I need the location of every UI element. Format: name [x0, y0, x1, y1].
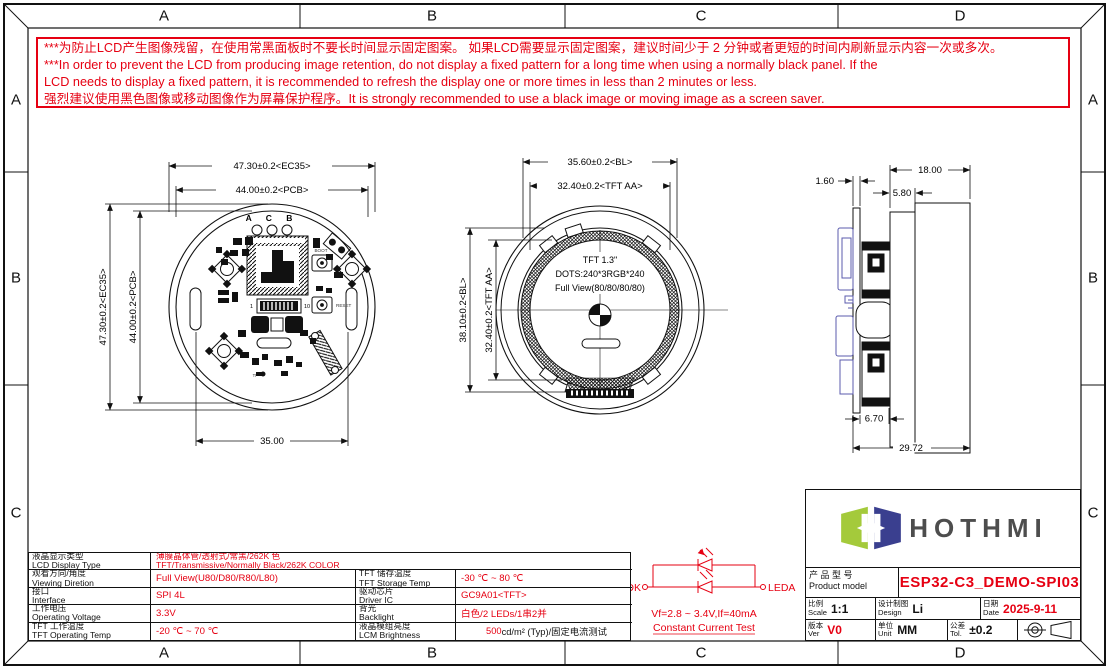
- lcd-slot: [582, 339, 620, 348]
- retention-warning-box: ***为防止LCD产生图像残留，在使用常黑面板时不要长时间显示固定图案。 如果L…: [36, 37, 1070, 108]
- date-cell: 日期Date 2025-9-11: [981, 598, 1080, 619]
- spec-value-viewing: Full View(U80/D80/R80/L80): [151, 570, 356, 587]
- centroid-symbol: [589, 304, 611, 326]
- spec-label-backlight: 背光Backlight: [356, 605, 456, 622]
- grid-col-b-top: B: [427, 8, 437, 25]
- spec-table: 液晶显示类型LCD Display Type 薄膜晶体管/透射式/常黑/262K…: [28, 552, 631, 641]
- version-value: V0: [827, 623, 842, 637]
- logo-wordmark: HOTHMI: [909, 513, 1048, 544]
- spec-label-viewing: 观看方向/角度Viewing Diretion: [29, 570, 151, 587]
- pin-header: [257, 299, 301, 313]
- front-dimensions: [105, 162, 375, 446]
- unit-cell: 单位Unit MM: [876, 620, 948, 640]
- spec-value-display-type: 薄膜晶体管/透射式/常黑/262K 色TFT/Transmissive/Norm…: [151, 553, 632, 570]
- dim-side-depth: 18.00: [918, 165, 942, 176]
- boot-label: BOOT: [314, 248, 327, 253]
- dim-lcd-left-outer: 38.10±0.2<BL>: [458, 277, 469, 342]
- front-view: A C B BOOT RESET: [98, 160, 375, 447]
- grid-col-c-bottom: C: [696, 645, 707, 662]
- spec-label-storage-temp: TFT 储存温度TFT Storage Temp: [356, 570, 456, 587]
- side-blue-components: [836, 228, 853, 394]
- side-flange: [890, 212, 915, 447]
- pin1-label: 1: [250, 304, 253, 310]
- bottom-components: [251, 316, 342, 377]
- grid-row-c-right: C: [1088, 505, 1099, 522]
- design-cell: 设计制图Design Li: [876, 598, 981, 619]
- design-value: Li: [912, 602, 923, 616]
- dim-front-top-inner: 44.00±0.2<PCB>: [236, 185, 309, 196]
- scale-design-date-row: 比例Scale 1:1 设计制图Design Li 日期Date 2025-9-…: [806, 598, 1080, 620]
- grid-row-a-right: A: [1088, 92, 1098, 109]
- led-symbol-bottom: [698, 570, 713, 593]
- product-model-row: 产 品 型 号Product model ESP32-C3_DEMO-SPI03: [806, 568, 1080, 599]
- warning-line-1: ***为防止LCD产生图像残留，在使用常黑面板时不要长时间显示固定图案。 如果L…: [44, 40, 1062, 57]
- lcd-text-line3: Full View(80/80/80/80): [555, 283, 645, 293]
- side-body: [915, 203, 970, 453]
- product-model-value: ESP32-C3_DEMO-SPI03: [899, 568, 1080, 598]
- dim-side-flange: 5.80: [893, 188, 912, 199]
- dim-side-total: 29.72: [899, 443, 923, 454]
- spec-value-brightness: 500 cd/m² (Typ)/固定电流测试: [456, 623, 632, 640]
- spec-value-voltage: 3.3V: [151, 605, 356, 622]
- spec-value-op-temp: -20 ℃ ~ 70 ℃: [151, 623, 356, 640]
- dim-lcd-top-inner: 32.40±0.2<TFT AA>: [557, 181, 643, 192]
- grid-row-a-left: A: [11, 92, 21, 109]
- grid-row-b-left: B: [11, 270, 21, 287]
- pin10-label: 10: [304, 304, 310, 310]
- lcd-text-line1: TFT 1.3": [583, 255, 618, 265]
- logo-row: HOTHMI: [806, 490, 1080, 568]
- tolerance-value: ±0.2: [969, 623, 992, 637]
- tolerance-cell: 公差Tol. ±0.2: [948, 620, 1018, 640]
- spec-label-op-temp: TFT 工作温度TFT Operating Temp: [29, 623, 151, 640]
- spec-value-backlight: 白色/2 LEDs/1串2并: [456, 605, 632, 622]
- warning-line-2: ***In order to prevent the LCD from prod…: [44, 57, 1062, 74]
- scale-value: 1:1: [831, 602, 848, 616]
- warning-line-3: LCD needs to display a fixed pattern, it…: [44, 74, 1062, 91]
- dim-front-bottom: 35.00: [260, 436, 284, 447]
- spec-label-driver-ic: 驱动芯片Driver IC: [356, 588, 456, 605]
- warning-line-4: 强烈建议使用黑色图像或移动图像作为屏幕保护程序。It is strongly r…: [44, 91, 1062, 108]
- fpc-connector: [566, 378, 634, 398]
- side-standoffs: [856, 242, 894, 406]
- circuit-spec: Vf=2.8 ~ 3.4V,If=40mA: [651, 608, 757, 620]
- spec-value-storage-temp: -30 ℃ ~ 80 ℃: [456, 570, 632, 587]
- date-value: 2025-9-11: [1003, 602, 1057, 616]
- version-cell: 版本Ver V0: [806, 620, 876, 640]
- grid-col-b-bottom: B: [427, 645, 437, 662]
- grid-col-d-bottom: D: [955, 645, 966, 662]
- unit-value: MM: [897, 623, 917, 637]
- hothmi-logo-mark: [838, 501, 904, 555]
- product-model-label: 产 品 型 号Product model: [806, 568, 899, 598]
- led-circuit: [643, 548, 766, 593]
- spec-label-display-type: 液晶显示类型LCD Display Type: [29, 553, 151, 570]
- lcd-text-line2: DOTS:240*3RGB*240: [555, 269, 644, 279]
- projection-cell: [1018, 620, 1080, 640]
- dim-front-top-outer: 47.30±0.2<EC35>: [233, 161, 311, 172]
- grid-row-c-left: C: [11, 505, 22, 522]
- led-a-label: LEDA: [768, 582, 795, 594]
- dim-front-left-outer: 47.30±0.2<EC35>: [98, 268, 109, 346]
- dim-side-gap: 6.70: [865, 414, 884, 425]
- scale-cell: 比例Scale 1:1: [806, 598, 876, 619]
- grid-row-b-right: B: [1088, 270, 1098, 287]
- grid-col-a-top: A: [159, 8, 169, 25]
- hole-labels: A C B: [246, 213, 299, 223]
- main-chip: [247, 236, 308, 295]
- lcd-view: TFT 1.3" DOTS:240*3RGB*240 Full View(80/…: [458, 156, 728, 414]
- dim-lcd-left-inner: 32.40±0.2<TFT AA>: [484, 267, 495, 353]
- spec-label-voltage: 工作电压Operating Voltage: [29, 605, 151, 622]
- spec-value-driver-ic: GC9A01<TFT>: [456, 588, 632, 605]
- spec-label-brightness: 液晶模组亮度LCM Brightness: [356, 623, 456, 640]
- engineering-drawing-sheet: { "colors": { "accent_red": "#e60012", "…: [0, 0, 1109, 669]
- mounting-holes: [252, 225, 292, 235]
- circuit-test-note: Constant Current Test: [653, 622, 755, 634]
- grid-col-a-bottom: A: [159, 645, 169, 662]
- grid-col-c-top: C: [696, 8, 707, 25]
- spec-label-interface: 接口Interface: [29, 588, 151, 605]
- boot-reset-buttons: [312, 255, 332, 313]
- title-block: HOTHMI 产 品 型 号Product model ESP32-C3_DEM…: [805, 489, 1081, 641]
- led-symbol-top: [698, 548, 713, 571]
- dim-front-left-inner: 44.00±0.2<PCB>: [128, 270, 139, 343]
- spec-value-interface: SPI 4L: [151, 588, 356, 605]
- dim-lcd-top-outer: 35.60±0.2<BL>: [568, 157, 633, 168]
- ver-unit-tol-row: 版本Ver V0 单位Unit MM 公差Tol. ±0.2: [806, 620, 1080, 640]
- side-view: 1.60 18.00 5.80 6.70 29.72: [816, 165, 971, 455]
- grid-col-d-top: D: [955, 8, 966, 25]
- dim-side-pcb: 1.60: [816, 176, 835, 187]
- reset-label: RESET: [336, 303, 352, 308]
- third-angle-projection-icon: [1023, 620, 1075, 640]
